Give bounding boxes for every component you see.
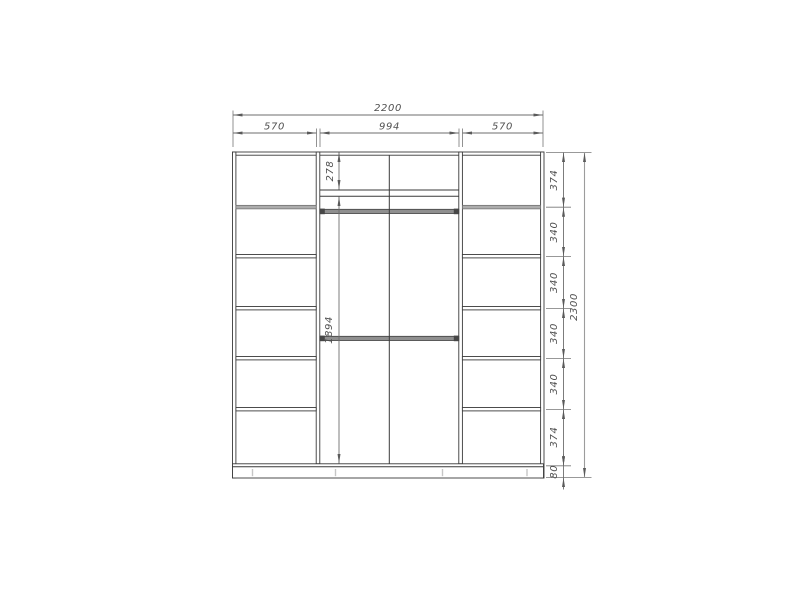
label-right-section-2: 340 xyxy=(549,222,560,243)
shelf xyxy=(462,408,540,411)
right-column-shelves xyxy=(462,205,540,411)
label-right-section-4: 340 xyxy=(549,323,560,344)
left-column-shelves xyxy=(236,205,316,411)
base-plinth xyxy=(233,467,544,478)
shelf xyxy=(462,255,540,258)
right-partition xyxy=(459,152,463,464)
extension-lines xyxy=(233,111,592,478)
rail-end-cap xyxy=(454,336,459,342)
shelf xyxy=(236,307,316,310)
drawing-svg: 2200 570 994 570 278 1894 374 340 340 34… xyxy=(0,0,800,600)
label-center-width: 994 xyxy=(379,122,400,133)
shelf xyxy=(462,307,540,310)
rail-end-cap xyxy=(320,209,325,215)
label-overall-height: 2300 xyxy=(569,293,580,321)
label-right-width: 570 xyxy=(492,122,513,133)
center-section xyxy=(320,155,459,464)
label-center-opening-height: 1894 xyxy=(324,316,335,344)
shelf xyxy=(236,357,316,360)
wardrobe-dimension-drawing: 2200 570 994 570 278 1894 374 340 340 34… xyxy=(0,0,800,600)
left-partition xyxy=(316,152,320,464)
dimension-labels: 2200 570 994 570 278 1894 374 340 340 34… xyxy=(264,103,580,479)
bottom-panel xyxy=(233,464,544,467)
rail-end-cap xyxy=(454,209,459,215)
top-panel xyxy=(233,152,544,155)
label-top-shelf-height: 278 xyxy=(325,161,336,182)
label-right-section-5: 340 xyxy=(549,374,560,395)
label-right-section-6: 374 xyxy=(549,427,560,448)
shelf xyxy=(462,205,540,209)
shelf xyxy=(236,408,316,411)
shelf xyxy=(236,205,316,209)
cabinet-body xyxy=(233,152,545,478)
label-left-width: 570 xyxy=(264,122,285,133)
label-base-height: 80 xyxy=(549,465,560,479)
dimension-lines xyxy=(233,115,585,490)
shelf xyxy=(236,255,316,258)
shelf xyxy=(462,357,540,360)
label-overall-width: 2200 xyxy=(374,103,402,114)
label-right-section-3: 340 xyxy=(549,272,560,293)
left-side-panel xyxy=(233,152,236,478)
label-right-section-1: 374 xyxy=(549,170,560,191)
right-side-panel xyxy=(541,152,544,478)
